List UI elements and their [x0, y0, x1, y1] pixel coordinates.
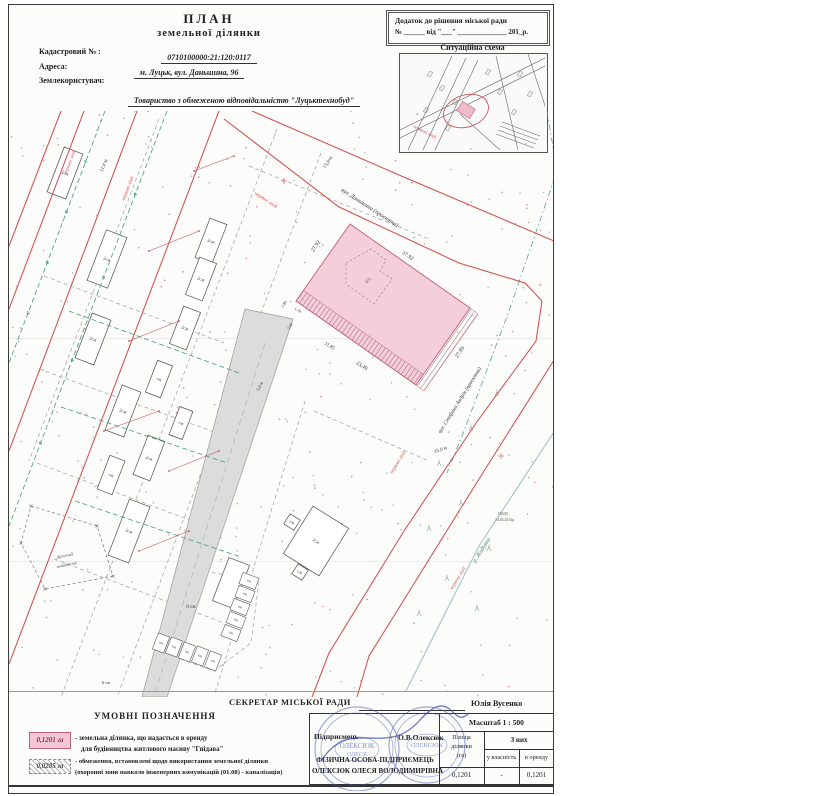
map-label: 15,0 м [323, 155, 335, 169]
address-label: Адреса: [39, 62, 67, 71]
stamp-name-2: ОЛЕСЯ [347, 752, 367, 758]
legend-title: УМОВНІ ПОЗНАЧЕННЯ [94, 711, 216, 721]
legend-item2-desc: - обмеження, встановлені щодо використан… [75, 757, 282, 778]
ownership-header: у власність [484, 754, 519, 761]
legend-item2-line2: (охоронні зони навколо інженерних комуні… [75, 768, 282, 779]
address-value-wrap: м. Луцьк, вул. Даньшина, 96 [89, 62, 289, 80]
map-label: 9 сж [186, 605, 196, 610]
legend-swatch-restriction: 0,0285 га [29, 759, 71, 774]
annex-box: Додаток до рішення міської ради № ______… [386, 10, 550, 46]
legend-swatch-plot: 0,1201 га [29, 732, 71, 749]
map-label: 1,78 [293, 306, 302, 315]
map-label: 2,89 [280, 300, 289, 309]
building: 2сж [169, 306, 200, 350]
building: сж [284, 514, 301, 531]
playground [20, 505, 115, 591]
table-line [484, 749, 554, 750]
cadastral-label: Кадастровий № : [39, 47, 101, 56]
landuser-value-wrap: Товариство з обмеженою відповідальністю … [59, 90, 429, 108]
building: 2сж [87, 230, 127, 288]
map-label: майданчик [55, 560, 78, 570]
divider [9, 691, 553, 692]
map-label: р. Жидувка [471, 536, 493, 565]
landuser-value: Товариство з обмеженою відповідальністю … [128, 96, 360, 107]
map-label: 180,80 [498, 512, 509, 517]
map-label: вул. Стефана Андрія (проектна) [436, 366, 483, 435]
map-label: 15,0 м [434, 446, 449, 455]
red-lines-layer [9, 111, 553, 697]
address-value: м. Луцьк, вул. Даньшина, 96 [134, 68, 245, 79]
signature-stroke [321, 706, 469, 761]
building: 2сж [185, 257, 216, 301]
map-label: 23,49 [355, 360, 369, 372]
legend-item2-line1: - обмеження, встановлені щодо використан… [75, 757, 282, 768]
cadastral-map: 2сж2сж2сж2сж2сж2сж2сжсж2сжсжсж2сж2сжсжсж… [9, 111, 553, 697]
map-label: 27,92 [310, 239, 322, 253]
building: 2сж [105, 385, 141, 437]
stamp-name-1: ОЛЕКСЮК [340, 742, 375, 750]
page-subtitle: земельної ділянки [69, 28, 349, 39]
building: сж [169, 406, 193, 439]
map-label: 11,0 м [100, 158, 110, 173]
building: сж [145, 360, 172, 397]
stamps: ОЛЕКСЮК ОЛЕСЯ ОЛЕКСЮК [299, 699, 489, 791]
building: 2сж [108, 499, 150, 563]
page-title: ПЛАН [69, 11, 349, 27]
map-label: 37,92 [401, 250, 415, 262]
annex-line2: № ______ від "___" ______________ 201_р. [395, 28, 528, 36]
map-label: червоні лінії [390, 450, 408, 475]
ownership-value: - [484, 771, 519, 779]
map-label: 6 сж [102, 680, 111, 685]
leased-plot [296, 224, 478, 391]
of-them-header: З них [484, 736, 554, 744]
lease-header: в оренду [519, 754, 554, 761]
building: сж [97, 455, 125, 494]
landuser-label: Землекористувач: [39, 76, 104, 85]
annex-line1: Додаток до рішення міської ради [395, 16, 507, 25]
map-label: Дитячий [55, 551, 75, 560]
plan-sheet: ПЛАН земельної ділянки Кадастровий № : 0… [8, 4, 554, 794]
stamp-name-3: ОЛЕКСЮК [411, 742, 444, 749]
lease-value: 0,1201 [519, 771, 554, 779]
survey-dots [11, 111, 553, 696]
map-label: 14.04.2014р. [495, 518, 515, 522]
sitmap-title: Ситуаційна схема [399, 43, 546, 52]
legend-item1-line1: - земельна ділянка, що надається в оренд… [75, 734, 223, 745]
legend-item1-line2: для будівництва житлового масиву "Гнідав… [75, 745, 223, 756]
page: { "doc": { "title": "ПЛАН", "subtitle": … [0, 0, 823, 796]
building: 2сж [133, 435, 165, 481]
legend-item1-desc: - земельна ділянка, що надається в оренд… [75, 734, 223, 755]
utility-teal-line [447, 111, 553, 473]
map-label: червоні лінії [412, 124, 438, 140]
map-label: вул. Даньшина (проектна) [340, 187, 400, 229]
map-label: 11,85 [323, 341, 335, 351]
map-label: 27,89 [454, 345, 466, 359]
